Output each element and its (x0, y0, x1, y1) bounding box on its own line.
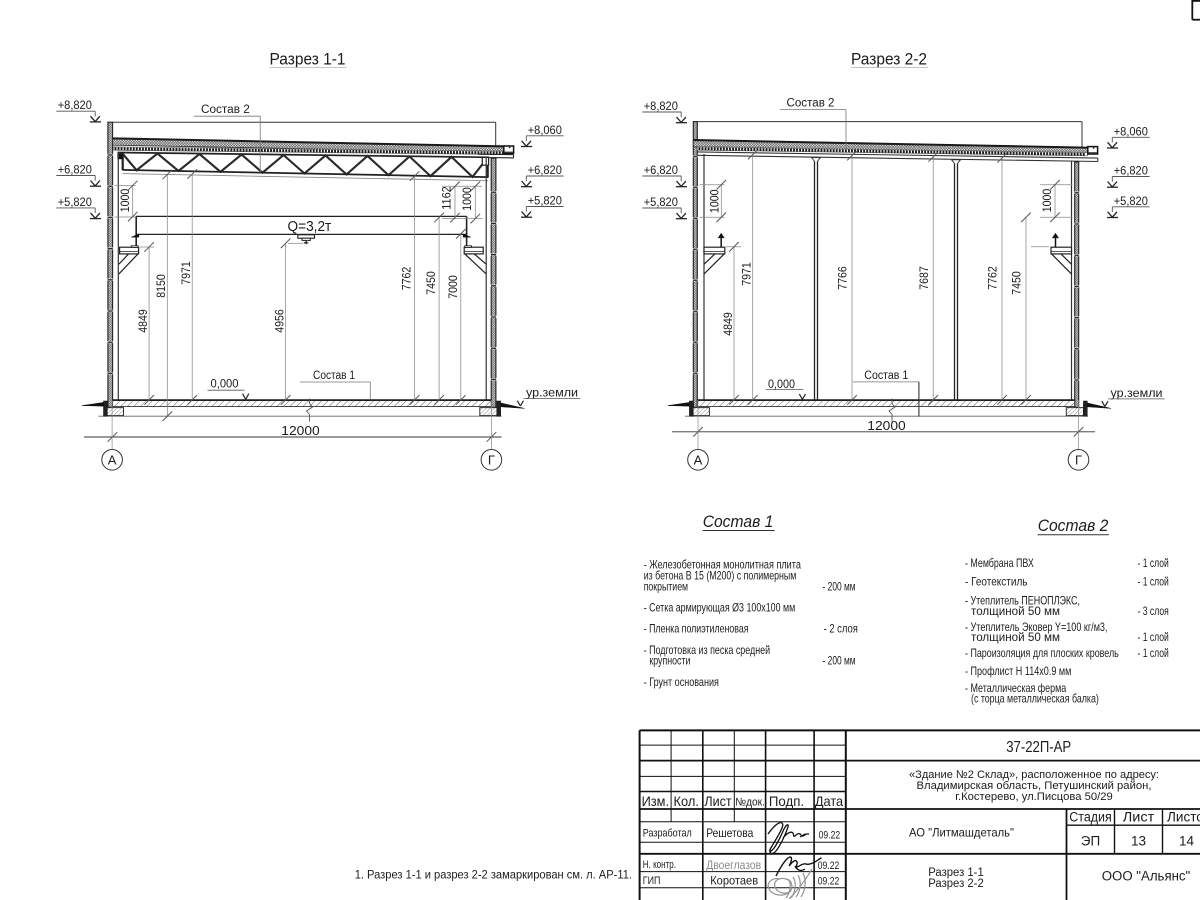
svg-text:ООО "Альянс": ООО "Альянс" (1102, 869, 1191, 884)
svg-text:- 1 слой: - 1 слой (1138, 631, 1169, 644)
svg-text:- Геотекстиль: - Геотекстиль (965, 576, 1028, 589)
svg-text:- Грунт основания: - Грунт основания (644, 676, 719, 689)
svg-text:Состав 1: Состав 1 (864, 370, 908, 382)
svg-text:09.22: 09.22 (818, 860, 840, 872)
svg-text:+8,820: +8,820 (644, 101, 678, 113)
svg-text:- 200 мм: - 200 мм (823, 654, 856, 667)
svg-text:Коротаев: Коротаев (710, 874, 758, 888)
svg-text:Н. контр.: Н. контр. (643, 859, 676, 871)
svg-text:- 1 слой: - 1 слой (1138, 576, 1169, 589)
svg-text:Г: Г (1075, 452, 1082, 467)
svg-text:Разрез 1-1: Разрез 1-1 (270, 51, 346, 69)
svg-text:Q=3,2т: Q=3,2т (288, 219, 332, 235)
svg-text:8150: 8150 (156, 274, 168, 298)
svg-text:Состав 1: Состав 1 (703, 512, 774, 531)
svg-text:Разрез 2-2: Разрез 2-2 (851, 51, 927, 69)
svg-text:Состав 2: Состав 2 (201, 104, 250, 116)
svg-text:ур.земли: ур.земли (526, 387, 578, 399)
svg-text:+8,060: +8,060 (1114, 126, 1148, 138)
svg-text:7762: 7762 (402, 267, 414, 291)
svg-text:Лист: Лист (704, 793, 732, 809)
svg-text:- 200 мм: - 200 мм (823, 580, 856, 593)
svg-text:1000: 1000 (462, 187, 474, 211)
svg-text:12000: 12000 (867, 419, 905, 433)
svg-text:0,000: 0,000 (211, 378, 239, 390)
svg-text:1000: 1000 (709, 190, 721, 214)
svg-text:+5,820: +5,820 (58, 197, 92, 209)
svg-text:37-22П-АР: 37-22П-АР (1006, 739, 1071, 756)
svg-text:ГИП: ГИП (643, 875, 661, 887)
svg-text:А: А (108, 452, 117, 467)
svg-text:Разработал: Разработал (643, 828, 692, 840)
svg-text:А: А (694, 452, 703, 467)
svg-text:Кол.: Кол. (674, 793, 699, 809)
svg-text:1162: 1162 (441, 186, 453, 210)
svg-text:Дата: Дата (815, 793, 843, 809)
svg-text:7450: 7450 (426, 271, 438, 295)
svg-text:толщиной 50 мм: толщиной 50 мм (971, 605, 1060, 618)
svg-text:+6,820: +6,820 (644, 165, 678, 177)
svg-text:7687: 7687 (919, 266, 931, 290)
svg-text:Лист: Лист (1123, 810, 1155, 825)
svg-text:4849: 4849 (138, 309, 150, 333)
svg-text:Подп.: Подп. (769, 793, 804, 809)
svg-text:4956: 4956 (274, 309, 286, 333)
svg-text:крупности: крупности (649, 654, 690, 667)
svg-text:№док.: №док. (735, 797, 765, 809)
svg-text:г.Костерево, ул.Писцова 50/29: г.Костерево, ул.Писцова 50/29 (955, 791, 1113, 803)
svg-text:толщиной 50 мм: толщиной 50 мм (971, 631, 1060, 644)
svg-text:- Сетка армирующая Ø3 100х100: - Сетка армирующая Ø3 100х100 мм (644, 602, 796, 615)
svg-text:- 1 слой: - 1 слой (1138, 557, 1169, 570)
svg-text:- 2 слоя: - 2 слоя (824, 623, 858, 636)
svg-text:- Мембрана ПВХ: - Мембрана ПВХ (965, 557, 1034, 570)
svg-text:Решетова: Решетова (706, 826, 753, 840)
svg-text:Состав 2: Состав 2 (1038, 516, 1109, 535)
svg-text:14: 14 (1179, 834, 1195, 849)
svg-text:+8,820: +8,820 (58, 100, 92, 112)
svg-text:Состав 1: Состав 1 (313, 370, 355, 382)
svg-text:12000: 12000 (281, 424, 319, 438)
svg-text:1000: 1000 (120, 189, 132, 213)
svg-text:Листов: Листов (1167, 810, 1200, 825)
svg-text:7450: 7450 (1012, 271, 1024, 295)
svg-text:4849: 4849 (723, 312, 735, 336)
svg-text:+6,820: +6,820 (1114, 166, 1148, 178)
svg-text:+6,820: +6,820 (528, 165, 562, 177)
svg-text:- Профлист Н 114х0.9 мм: - Профлист Н 114х0.9 мм (965, 665, 1071, 678)
svg-text:+5,820: +5,820 (528, 196, 562, 208)
svg-text:7766: 7766 (838, 266, 850, 290)
svg-text:7762: 7762 (988, 266, 1000, 290)
svg-text:покрытием: покрытием (644, 580, 688, 593)
svg-text:Двоеглазов: Двоеглазов (706, 858, 761, 872)
svg-text:Состав 2: Состав 2 (787, 98, 835, 110)
svg-text:7971: 7971 (741, 262, 753, 286)
svg-text:1000: 1000 (1042, 189, 1054, 213)
svg-text:+8,060: +8,060 (528, 125, 562, 137)
svg-text:7971: 7971 (181, 261, 193, 285)
svg-text:+5,820: +5,820 (1114, 196, 1148, 208)
svg-text:1. Разрез 1-1 и разрез 2-2 зам: 1. Разрез 1-1 и разрез 2-2 замаркирован … (355, 868, 632, 882)
svg-text:АО "Литмашдеталь": АО "Литмашдеталь" (909, 826, 1014, 840)
svg-text:- 1 слой: - 1 слой (1138, 647, 1169, 660)
svg-text:Г: Г (488, 452, 495, 467)
svg-text:ур.земли: ур.земли (1111, 388, 1163, 400)
svg-text:+6,820: +6,820 (58, 165, 92, 177)
svg-text:- Пароизоляция для плоских кро: - Пароизоляция для плоских кровель (965, 647, 1119, 660)
svg-text:Стадия: Стадия (1069, 810, 1112, 825)
svg-text:7000: 7000 (448, 275, 460, 299)
svg-text:Разрез 2-2: Разрез 2-2 (928, 878, 984, 890)
svg-text:- Пленка полиэтиленовая: - Пленка полиэтиленовая (644, 623, 749, 636)
svg-text:09.22: 09.22 (819, 830, 841, 842)
svg-text:- 3 слоя: - 3 слоя (1138, 605, 1169, 618)
svg-text:13: 13 (1131, 834, 1146, 849)
svg-text:ЭП: ЭП (1081, 834, 1100, 849)
svg-text:09.22: 09.22 (818, 876, 840, 888)
svg-text:+5,820: +5,820 (644, 197, 678, 209)
svg-text:Изм.: Изм. (642, 793, 669, 809)
svg-text:(с торца металлическая балка): (с торца металлическая балка) (971, 692, 1099, 705)
